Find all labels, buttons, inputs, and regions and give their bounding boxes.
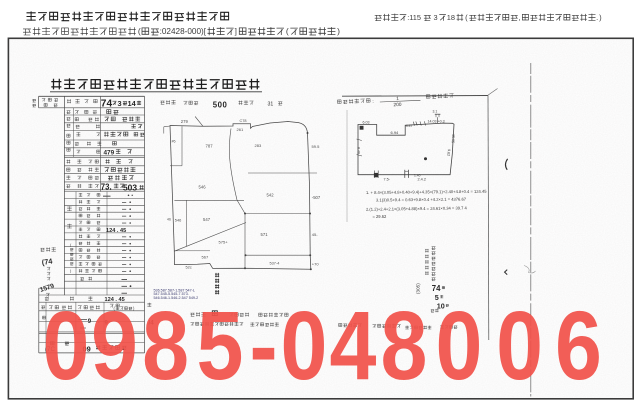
svg-text:): ) <box>599 13 602 22</box>
svg-text:): ) <box>337 26 340 36</box>
svg-text:(: ( <box>286 26 289 36</box>
svg-text:,: , <box>518 13 520 22</box>
svg-text:18: 18 <box>447 13 455 22</box>
svg-text:]: ] <box>235 27 237 36</box>
svg-text:(: ( <box>138 26 141 36</box>
svg-text::02428-000)[: :02428-000)[ <box>160 27 207 36</box>
svg-text:3: 3 <box>434 13 438 22</box>
svg-text:(: ( <box>465 13 468 22</box>
svg-text:.: . <box>596 13 598 22</box>
svg-text:0985-048006: 0985-048006 <box>43 292 602 400</box>
svg-text::115: :115 <box>407 13 421 22</box>
